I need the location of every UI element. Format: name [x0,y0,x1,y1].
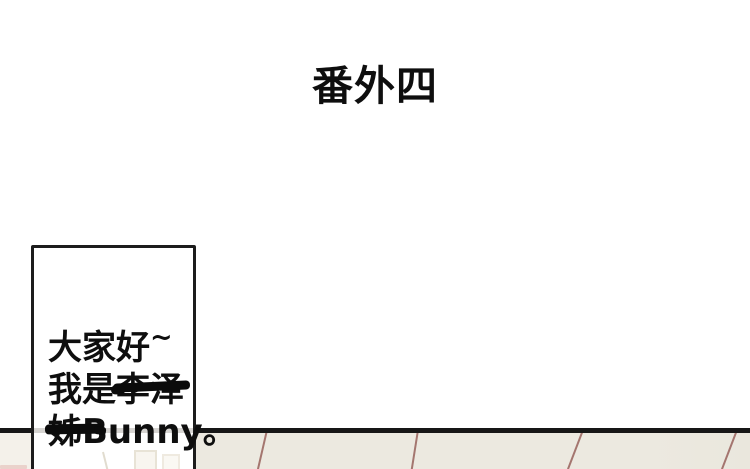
narration-box: 大家好~ 我是李泽 姊Bunny。 [31,245,196,469]
chapter-title: 番外四 [0,52,750,112]
comic-page: 番外四 大家好~ 我是李泽 姊Bunny。 [0,0,750,469]
strikethrough-scribble [45,423,103,434]
pink-artwork-edge [0,465,27,469]
ceiling-seam-line [567,430,584,469]
background-line-hint [102,452,112,469]
tilde-mark: ~ [150,317,173,359]
ceiling-seam-line [721,430,738,469]
intro-text: 我是 [48,370,116,410]
speech-line-1: 大家好~ [48,327,237,369]
ceiling-seam-line [257,430,268,469]
ceiling-seam-line [410,430,419,469]
door-frame-hint [162,454,180,469]
greeting-text: 大家好 [48,328,150,368]
